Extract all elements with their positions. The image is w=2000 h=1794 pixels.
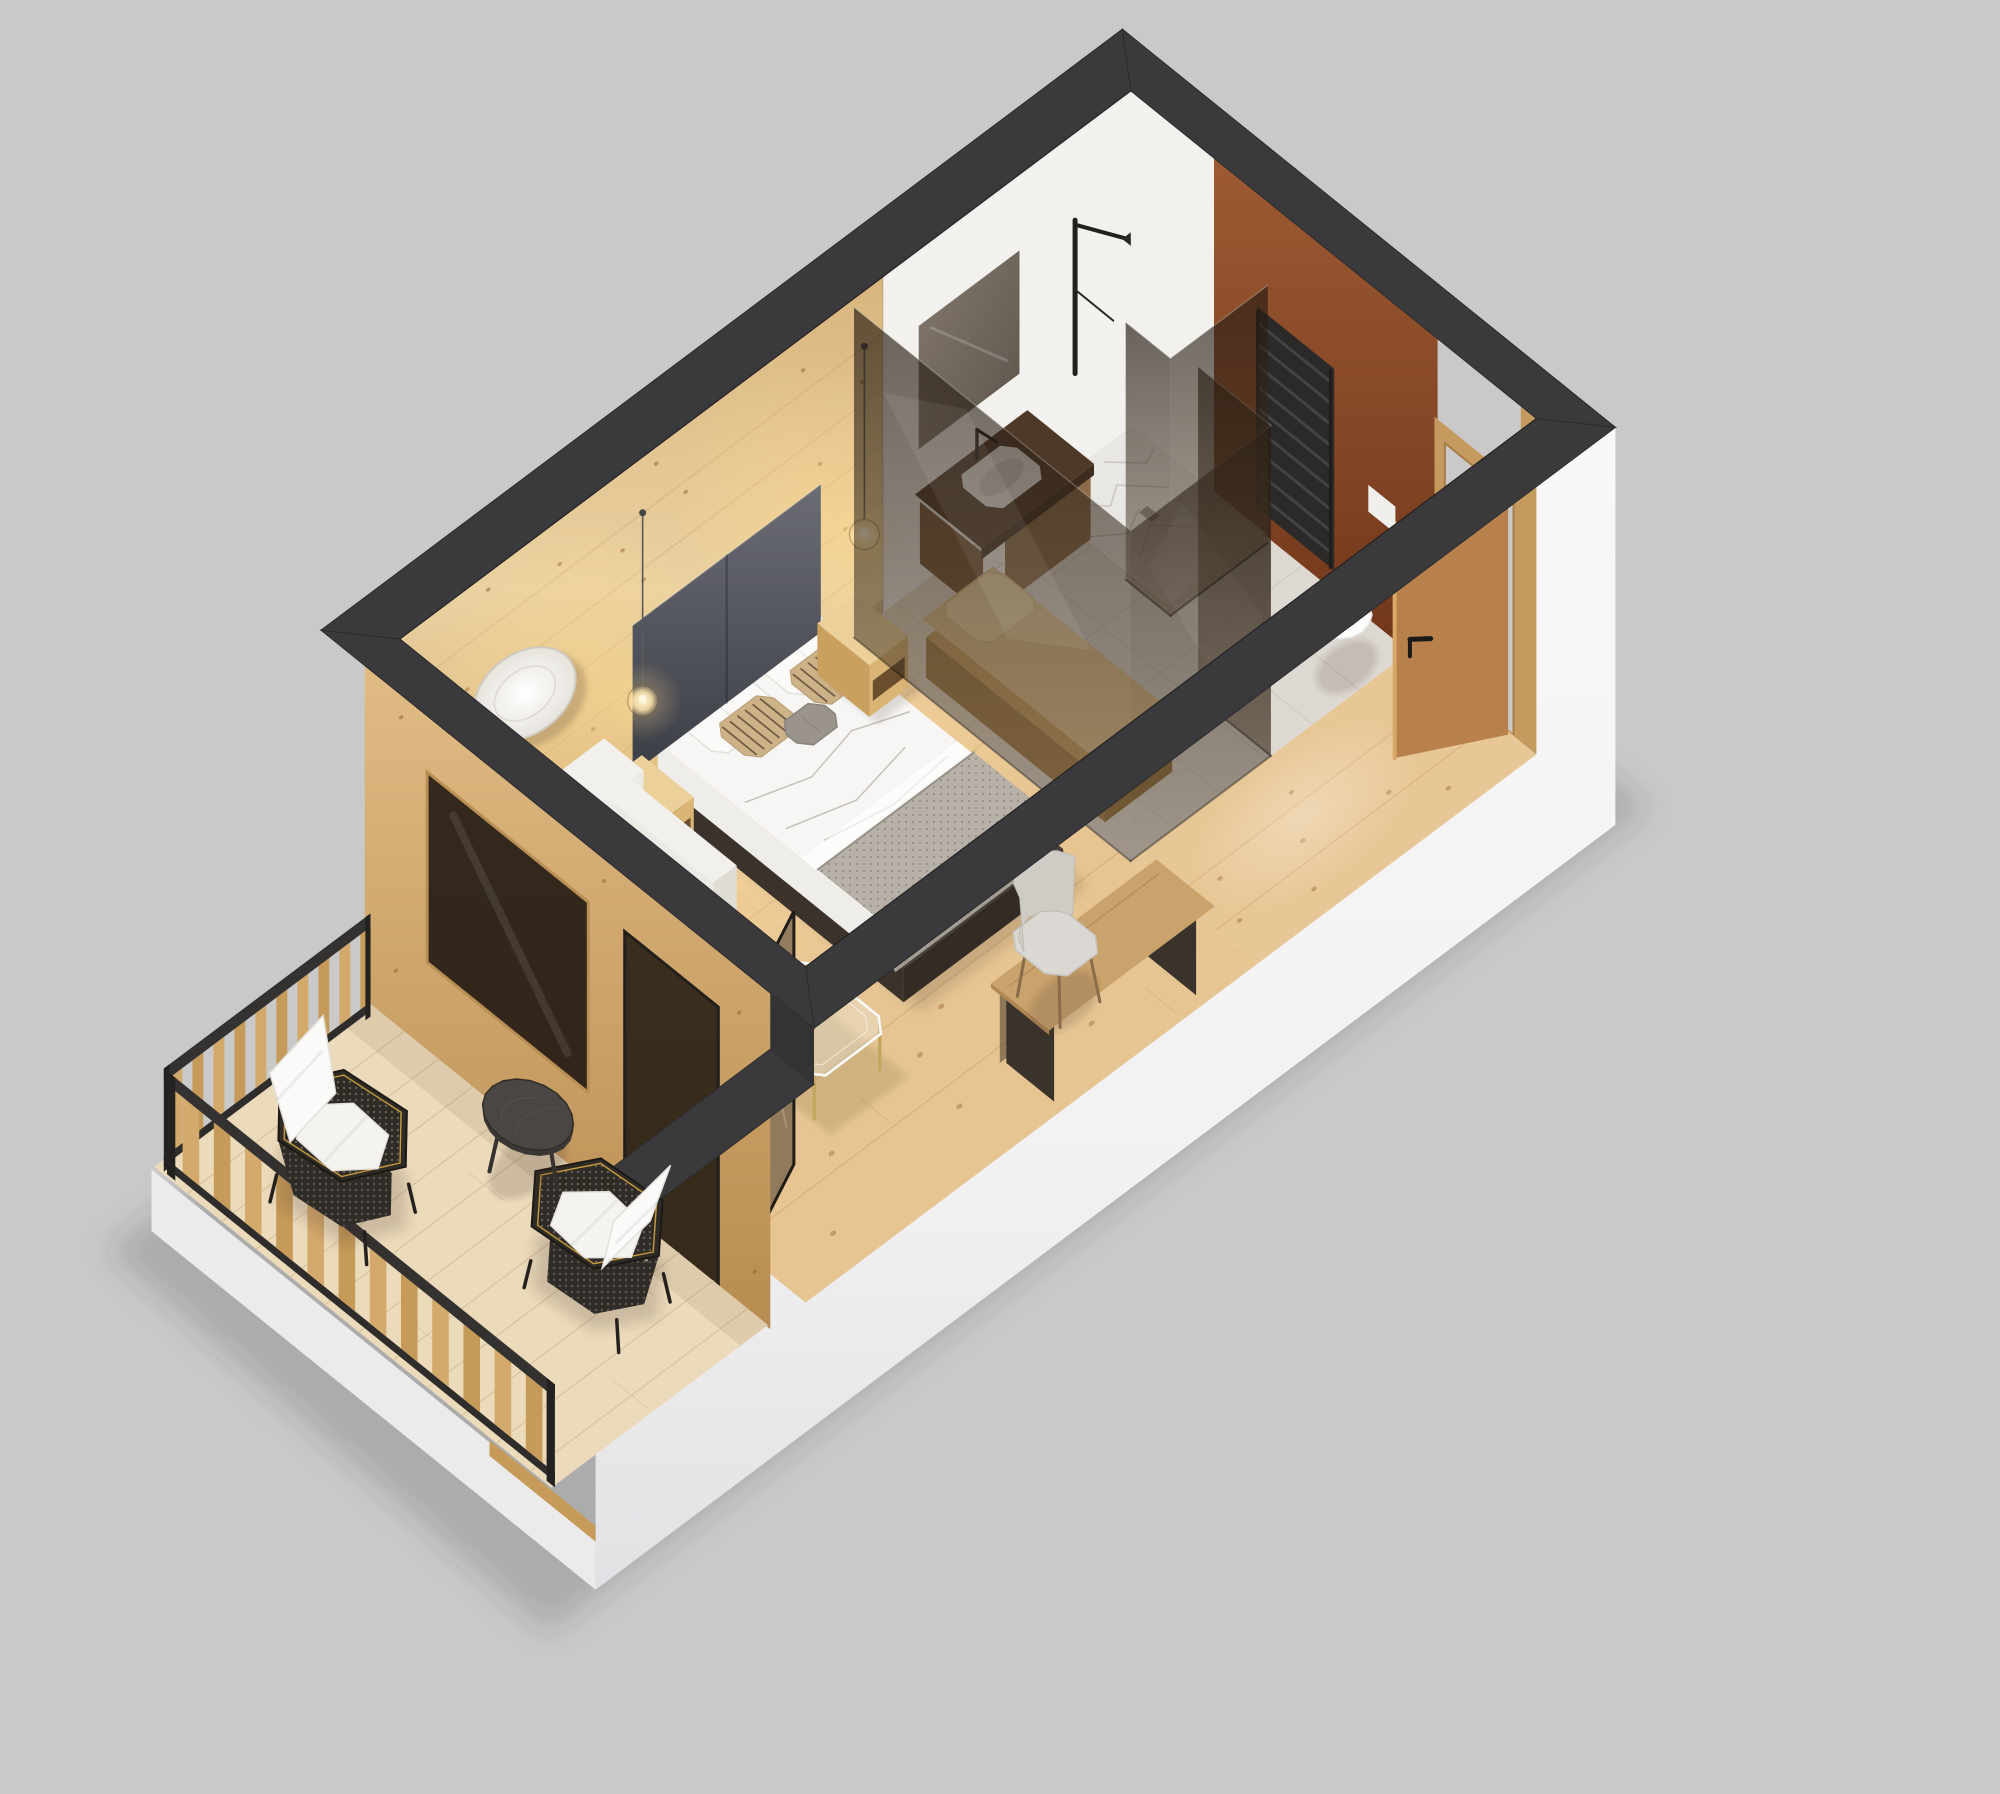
floorplan-stage — [0, 0, 2000, 1794]
floorplan-3d-render — [0, 0, 2000, 1794]
glass-shower-return — [1126, 322, 1171, 616]
door-handle — [1410, 639, 1431, 640]
